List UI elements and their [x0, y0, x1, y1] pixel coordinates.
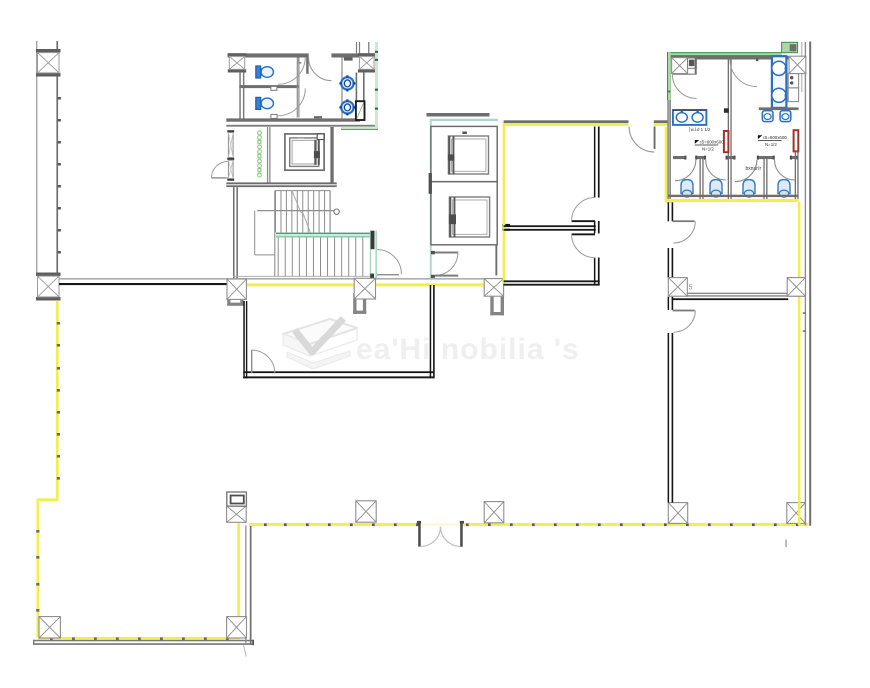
svg-text:c5=600x600: c5=600x600: [763, 135, 788, 140]
svg-text:N=1/2: N=1/2: [765, 142, 777, 147]
svg-text:ea'Hi nobilia 's: ea'Hi nobilia 's: [356, 333, 580, 366]
svg-text:N=1/2: N=1/2: [702, 147, 714, 152]
svg-text:5: 5: [689, 285, 693, 292]
svg-text:c5=600x600: c5=600x600: [700, 140, 725, 145]
